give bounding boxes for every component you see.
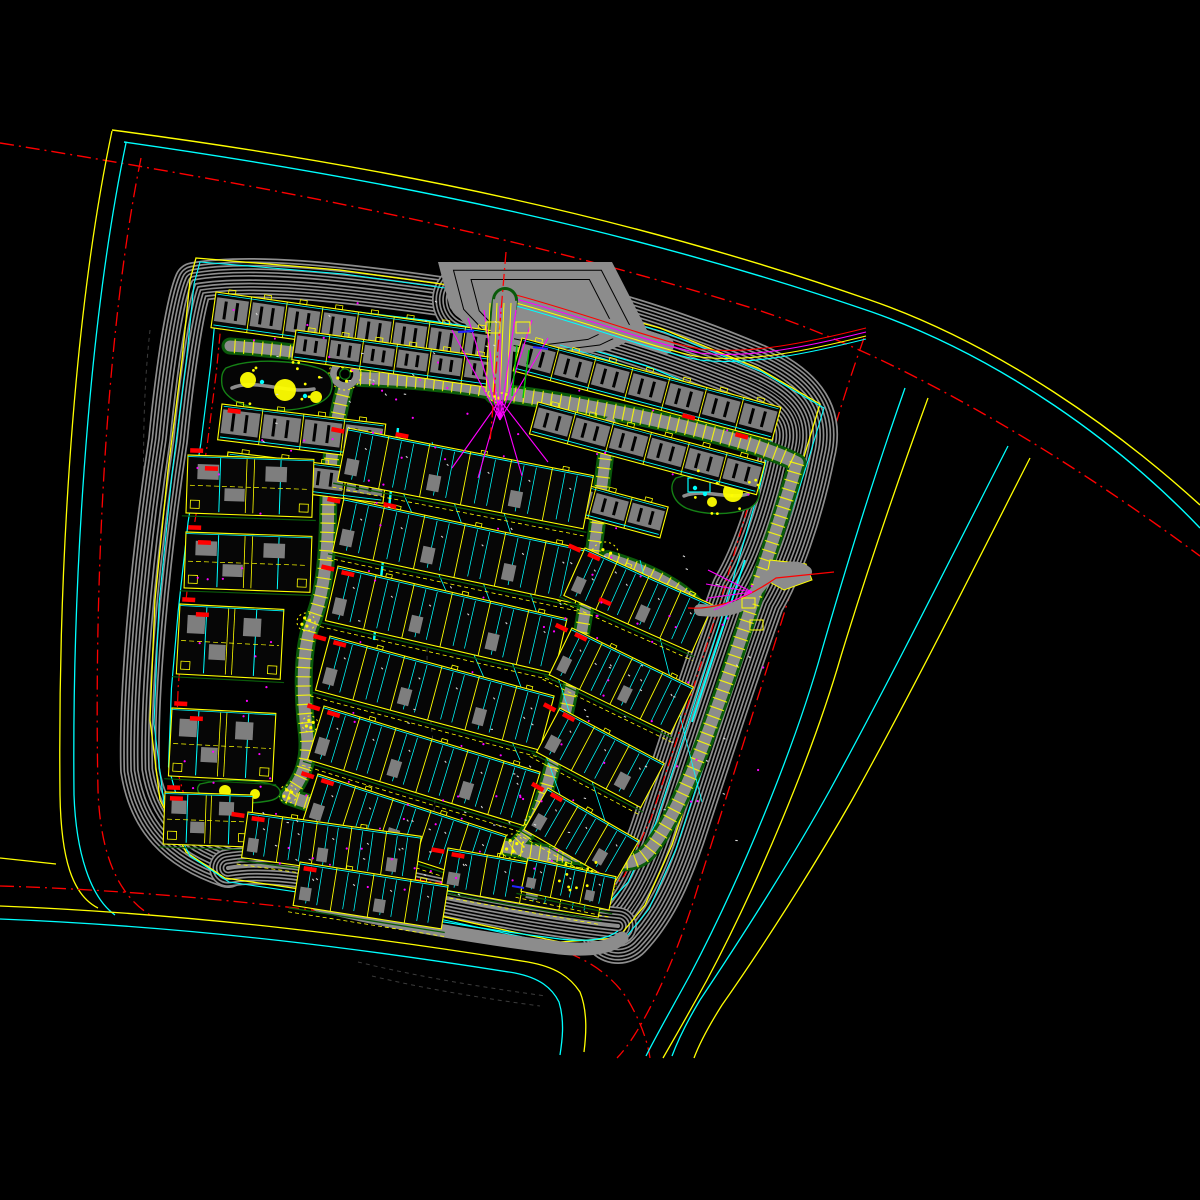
magenta-speck [757, 769, 759, 771]
cad-viewport [0, 0, 1200, 1200]
junction-dot [282, 795, 285, 798]
magenta-speck [511, 879, 513, 881]
label-speck [348, 380, 350, 381]
landscape-water-dot [703, 492, 707, 496]
landscape-water-dot [693, 486, 697, 490]
magenta-speck [444, 458, 446, 460]
magenta-speck [727, 617, 729, 619]
magenta-speck [323, 337, 325, 339]
magenta-speck [212, 782, 214, 784]
magenta-speck [253, 339, 255, 341]
yellow-speck [716, 512, 719, 515]
junction-dot [287, 796, 290, 799]
yellow-speck [567, 886, 570, 889]
junction-dot [312, 721, 315, 724]
magenta-speck [269, 777, 271, 779]
villa-roof-patch [208, 644, 225, 660]
magenta-speck [762, 666, 764, 668]
magenta-speck [259, 512, 261, 514]
junction-dot [285, 788, 288, 791]
entrance-red-mark [188, 525, 201, 530]
yellow-speck [697, 469, 700, 472]
label-speck [735, 840, 737, 841]
magenta-speck [695, 759, 697, 761]
magenta-speck [372, 432, 374, 434]
magenta-speck [254, 655, 256, 657]
villa-roof-patch [222, 564, 243, 577]
magenta-speck [242, 715, 244, 717]
magenta-speck [676, 765, 678, 767]
landscape-water-dot [303, 394, 307, 398]
landscape-blob [707, 497, 717, 507]
yellow-speck [586, 867, 589, 870]
magenta-speck [482, 743, 484, 745]
magenta-speck [457, 795, 459, 797]
magenta-speck [437, 361, 439, 363]
magenta-speck [259, 786, 261, 788]
junction-dot [308, 619, 311, 622]
magenta-speck [604, 452, 606, 454]
junction-dot [512, 850, 515, 853]
junction-dot [309, 726, 312, 729]
label-speck [491, 729, 493, 730]
label-speck [673, 696, 675, 697]
yellow-speck [248, 402, 251, 405]
magenta-speck [500, 754, 502, 756]
magenta-speck [414, 867, 416, 869]
magenta-speck [246, 700, 248, 702]
magenta-speck [361, 848, 363, 850]
yellow-speck [710, 512, 713, 515]
magenta-speck [382, 483, 384, 485]
yellow-speck [564, 863, 567, 866]
junction-dot [305, 724, 308, 727]
yellow-speck [716, 482, 719, 485]
magenta-speck [212, 751, 214, 753]
magenta-speck [600, 601, 602, 603]
yellow-speck [292, 361, 295, 364]
magenta-speck [591, 574, 593, 576]
magenta-speck [442, 799, 444, 801]
roof-slab [214, 297, 249, 325]
landscape-water-dot [260, 380, 264, 384]
building-row-villa [164, 701, 280, 785]
building-row-villa [172, 597, 288, 683]
magenta-speck [197, 577, 199, 579]
magenta-speck [596, 615, 598, 617]
yellow-speck [590, 870, 593, 873]
junction-dot [307, 719, 310, 722]
entrance-red-mark [174, 701, 187, 706]
unit-roof-patch [247, 838, 259, 853]
magenta-speck [636, 623, 638, 625]
magenta-speck [305, 794, 307, 796]
magenta-speck [651, 641, 653, 643]
unit-roof-patch [447, 872, 461, 886]
magenta-speck [401, 457, 403, 459]
magenta-speck [404, 889, 406, 891]
magenta-speck [346, 847, 348, 849]
junction-dot [303, 616, 306, 619]
magenta-speck [379, 524, 381, 526]
label-speck [287, 822, 289, 823]
magenta-speck [288, 847, 290, 849]
magenta-speck [543, 626, 545, 628]
magenta-speck [306, 324, 308, 326]
magenta-speck [196, 467, 198, 469]
magenta-speck [495, 795, 497, 797]
label-speck [276, 394, 278, 395]
magenta-speck [690, 801, 692, 803]
junction-dot [601, 548, 604, 551]
villa-roof-patch [263, 543, 285, 558]
junction-dot [509, 839, 512, 842]
magenta-speck [391, 858, 393, 860]
yellow-speck [754, 479, 757, 482]
magenta-speck [241, 567, 243, 569]
magenta-speck [722, 624, 724, 626]
yellow-speck [300, 398, 303, 401]
magenta-speck [412, 417, 414, 419]
magenta-speck [435, 823, 437, 825]
magenta-speck [640, 575, 642, 577]
unit-roof-patch [299, 887, 312, 902]
yellow-speck [252, 369, 255, 372]
villa-roof-patch [235, 722, 254, 741]
landscape-blob [240, 372, 256, 388]
magenta-speck [367, 886, 369, 888]
yellow-speck [694, 496, 697, 499]
junction-dot [609, 552, 612, 555]
magenta-speck [446, 387, 448, 389]
yellow-speck [569, 889, 572, 892]
villa-roof-patch [200, 747, 217, 763]
magenta-speck [354, 721, 356, 723]
junction-dot [290, 791, 293, 794]
yellow-speck [304, 383, 307, 386]
villa-roof-patch [179, 719, 198, 738]
label-speck [361, 353, 363, 354]
landscape-blob [274, 379, 296, 401]
magenta-speck [258, 753, 260, 755]
label-speck [671, 742, 673, 743]
yellow-speck [575, 886, 578, 889]
magenta-speck [232, 309, 234, 311]
magenta-speck [303, 439, 305, 441]
yellow-speck [318, 376, 321, 379]
magenta-speck [519, 794, 521, 796]
magenta-speck [564, 617, 566, 619]
magenta-speck [265, 686, 267, 688]
yellow-speck [595, 861, 598, 864]
yellow-speck [255, 367, 258, 370]
magenta-speck [533, 867, 535, 869]
magenta-speck [222, 578, 224, 580]
junction-dot [336, 376, 339, 379]
magenta-speck [328, 356, 330, 358]
unit-entry-red-mark [190, 716, 203, 721]
magenta-speck [430, 870, 432, 872]
yellow-speck [565, 873, 568, 876]
magenta-speck [602, 695, 604, 697]
yellow-speck [738, 507, 741, 510]
villa-roof-patch [243, 618, 262, 637]
magenta-speck [434, 446, 436, 448]
magenta-speck [407, 804, 409, 806]
roof-slab [261, 414, 301, 442]
roof-slab [250, 302, 285, 330]
magenta-speck [372, 383, 374, 385]
unit-entry-red-mark [198, 540, 211, 545]
unit-entry-red-mark [196, 612, 209, 617]
magenta-speck [455, 877, 457, 879]
yellow-speck [748, 481, 751, 484]
villa-roof-patch [224, 488, 245, 501]
magenta-speck [560, 743, 562, 745]
magenta-speck [218, 473, 220, 475]
magenta-speck [374, 579, 376, 581]
yellow-speck [308, 395, 311, 398]
yellow-speck [296, 367, 299, 370]
magenta-speck [675, 626, 677, 628]
entrance-red-mark [190, 448, 203, 453]
magenta-speck [312, 857, 314, 859]
magenta-speck [279, 862, 281, 864]
magenta-speck [395, 398, 397, 400]
yellow-speck [586, 884, 589, 887]
yellow-speck [558, 880, 561, 883]
label-speck [716, 584, 718, 585]
magenta-speck [332, 438, 334, 440]
magenta-speck [556, 849, 558, 851]
villa-roof-patch [265, 466, 287, 482]
magenta-speck [540, 800, 542, 802]
building-row-villa [180, 525, 316, 596]
entrance-red-mark [167, 785, 180, 790]
roof-slab [302, 419, 342, 447]
cad-canvas[interactable] [0, 0, 1200, 1200]
villa-roof-patch [187, 615, 206, 634]
junction-dot [345, 380, 348, 383]
magenta-speck [403, 818, 405, 820]
magenta-speck [184, 760, 186, 762]
unit-entry-red-mark [170, 796, 183, 801]
magenta-speck [466, 413, 468, 415]
magenta-speck [368, 480, 370, 482]
landscape-blob [310, 391, 322, 403]
yellow-speck [757, 484, 760, 487]
magenta-speck [381, 390, 383, 392]
magenta-speck [553, 630, 555, 632]
magenta-speck [356, 302, 358, 304]
magenta-speck [607, 679, 609, 681]
magenta-speck [199, 642, 201, 644]
entrance-red-mark [182, 597, 195, 602]
unit-roof-patch [316, 847, 328, 862]
magenta-speck [522, 798, 524, 800]
magenta-speck [668, 615, 670, 617]
magenta-speck [651, 720, 653, 722]
unit-roof-patch [373, 898, 386, 913]
yellow-speck [297, 361, 300, 364]
junction-dot [515, 842, 518, 845]
villa-roof-patch [171, 800, 186, 814]
magenta-speck [207, 578, 209, 580]
junction-dot [505, 847, 508, 850]
yellow-speck [731, 494, 734, 497]
junction-dot [305, 624, 308, 627]
label-speck [664, 809, 666, 810]
building-row-villa [182, 448, 318, 521]
magenta-speck [697, 800, 699, 802]
villa-roof-patch [190, 822, 204, 834]
magenta-speck [603, 762, 605, 764]
junction-dot [300, 623, 303, 626]
magenta-speck [270, 641, 272, 643]
blue-tick [458, 331, 474, 332]
magenta-speck [192, 787, 194, 789]
magenta-speck [751, 585, 753, 587]
magenta-speck [517, 433, 519, 435]
unit-entry-red-mark [205, 466, 218, 471]
